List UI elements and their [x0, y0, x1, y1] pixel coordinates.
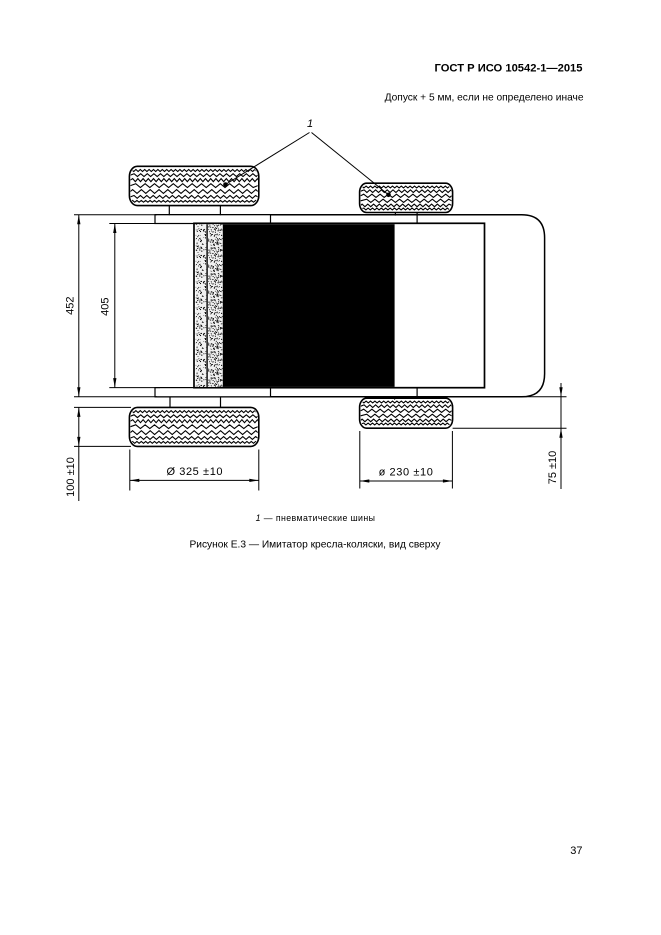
svg-text:37: 37 — [570, 845, 582, 857]
svg-text:Допуск + 5 мм, если не определ: Допуск + 5 мм, если не определено иначе — [385, 93, 584, 104]
svg-text:100 ±10: 100 ±10 — [65, 457, 77, 497]
svg-text:Ø 325 ±10: Ø 325 ±10 — [166, 466, 223, 478]
svg-text:452: 452 — [64, 297, 76, 315]
svg-text:ГОСТ Р ИСО 10542-1—2015: ГОСТ Р ИСО 10542-1—2015 — [435, 62, 583, 74]
svg-text:1 — пневматические шины: 1 — пневматические шины — [256, 513, 376, 523]
svg-text:405: 405 — [99, 298, 111, 316]
svg-text:1: 1 — [307, 118, 313, 130]
svg-text:75 ±10: 75 ±10 — [547, 451, 559, 485]
svg-text:Рисунок Е.3 — Имитатор кресла-: Рисунок Е.3 — Имитатор кресла-коляски, в… — [189, 539, 441, 550]
svg-text:ø 230 ±10: ø 230 ±10 — [379, 467, 434, 479]
